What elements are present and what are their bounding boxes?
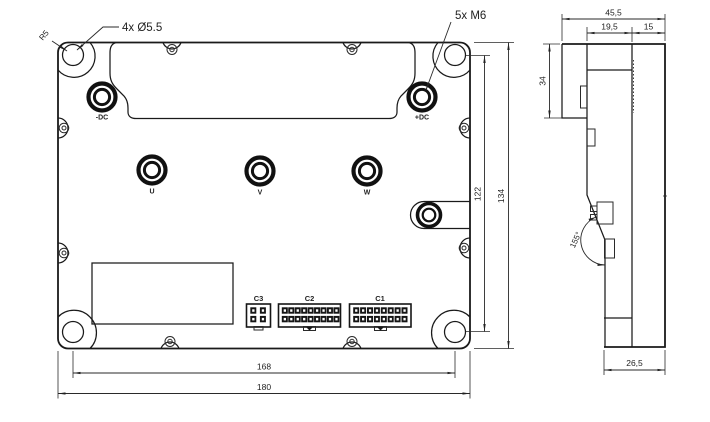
phase-terminal-u: U xyxy=(139,157,166,196)
tab-hole xyxy=(62,126,66,130)
top-tab xyxy=(343,43,361,49)
pin xyxy=(388,316,394,322)
front-view: -DC +DC U V W xyxy=(58,43,470,349)
pin xyxy=(288,307,294,313)
pin xyxy=(282,316,288,322)
dim-134: 134 xyxy=(496,189,506,203)
pin xyxy=(314,307,320,313)
pin xyxy=(295,316,301,322)
pin xyxy=(260,307,266,313)
front-dimensions: 122 134 168 180 xyxy=(58,43,514,399)
pin xyxy=(321,307,327,313)
pin xyxy=(374,316,380,322)
terminal-ring xyxy=(144,162,159,177)
pin xyxy=(374,307,380,313)
side-notch xyxy=(587,129,595,146)
terminal-ring xyxy=(359,163,374,178)
ground-stud-tab xyxy=(411,202,471,229)
connector-shell xyxy=(247,304,271,327)
corner-pad-bottom-right xyxy=(432,310,470,348)
pin xyxy=(301,307,307,313)
pin xyxy=(353,307,359,313)
pin xyxy=(250,316,256,322)
pin xyxy=(308,307,314,313)
nameplate-area xyxy=(92,263,233,324)
terminal-block-profile xyxy=(562,44,587,118)
pin xyxy=(333,307,339,313)
pin xyxy=(250,307,256,313)
corner-pad-bottom-left xyxy=(58,310,96,348)
side-outline xyxy=(562,44,665,347)
pin xyxy=(301,316,307,322)
pin xyxy=(327,307,333,313)
dim-168: 168 xyxy=(257,362,271,372)
tab-hole xyxy=(59,123,69,133)
connector-c2-label: C2 xyxy=(305,294,315,303)
pin xyxy=(314,316,320,322)
pin xyxy=(381,316,387,322)
mounting-hole xyxy=(445,45,466,66)
pin xyxy=(367,316,373,322)
phase-terminal-v: V xyxy=(247,158,274,197)
dim-180: 180 xyxy=(257,382,271,392)
tab-hole xyxy=(462,126,466,130)
connector-c2: C2 xyxy=(279,294,341,331)
callout-mounting-holes: 4x Ø5.5 xyxy=(122,22,162,34)
tab-hole xyxy=(62,251,66,255)
dim-26-5: 26,5 xyxy=(626,358,643,368)
technical-drawing-page: -DC +DC U V W xyxy=(0,0,710,422)
pin xyxy=(360,316,366,322)
front-face-profile xyxy=(587,44,605,347)
side-connector-body xyxy=(597,202,613,224)
side-view xyxy=(562,44,667,347)
phase-terminal-w: W xyxy=(354,158,381,197)
tab-hole xyxy=(459,243,469,253)
connector-c1-label: C1 xyxy=(375,294,385,303)
connector-c1: C1 xyxy=(350,294,412,331)
bottom-tab xyxy=(161,342,179,348)
dim-45-5: 45,5 xyxy=(605,8,622,18)
phase-w-label: W xyxy=(364,190,371,197)
pin xyxy=(402,307,408,313)
tab-hole xyxy=(59,248,69,258)
pin xyxy=(327,316,333,322)
mounting-hole xyxy=(63,322,84,343)
mounting-hole xyxy=(63,45,84,66)
top-tab xyxy=(163,43,181,49)
pin xyxy=(321,316,327,322)
terminal-ring xyxy=(414,89,429,104)
cover-recess-outline xyxy=(110,43,415,119)
tab-hole xyxy=(462,246,466,250)
tab-hole xyxy=(459,123,469,133)
pin xyxy=(381,307,387,313)
mounting-hole xyxy=(445,322,466,343)
dim-122: 122 xyxy=(473,187,483,201)
dim-19-5: 19,5 xyxy=(601,22,618,32)
dim-15: 15 xyxy=(644,22,654,32)
controller-drawing: -DC +DC U V W xyxy=(0,0,710,422)
pin xyxy=(282,307,288,313)
callout-r5: R5 xyxy=(37,28,51,42)
pin xyxy=(395,307,401,313)
dc-pos-label: +DC xyxy=(415,115,429,122)
connector-c3: C3 xyxy=(247,294,271,330)
phase-u-label: U xyxy=(149,189,154,196)
pin xyxy=(288,316,294,322)
connector-c3-label: C3 xyxy=(254,294,264,303)
pin xyxy=(295,307,301,313)
dc-positive-terminal: +DC xyxy=(409,84,436,122)
terminal-ring xyxy=(94,89,109,104)
pin xyxy=(388,307,394,313)
pin xyxy=(260,316,266,322)
dc-neg-label: -DC xyxy=(96,115,108,122)
side-tab xyxy=(581,86,588,108)
leader-terminal-thread xyxy=(426,22,451,90)
pin xyxy=(367,307,373,313)
pin xyxy=(353,316,359,322)
pin xyxy=(360,307,366,313)
side-dimensions: 45,5 19,5 15 34 26,5 155° xyxy=(538,8,666,376)
callouts: R5 4x Ø5.5 5x M6 xyxy=(37,10,486,90)
terminal-ring xyxy=(423,209,436,222)
pin xyxy=(333,316,339,322)
pin xyxy=(395,316,401,322)
dim-34: 34 xyxy=(538,76,548,86)
pin xyxy=(308,316,314,322)
callout-terminal-thread: 5x M6 xyxy=(455,10,486,22)
terminal-ring xyxy=(252,163,267,178)
bottom-tab xyxy=(343,342,361,348)
slope-tab xyxy=(605,239,615,258)
dc-negative-terminal: -DC xyxy=(89,84,116,122)
leader-mounting-holes xyxy=(77,27,119,50)
pin xyxy=(402,316,408,322)
phase-v-label: V xyxy=(258,190,263,197)
